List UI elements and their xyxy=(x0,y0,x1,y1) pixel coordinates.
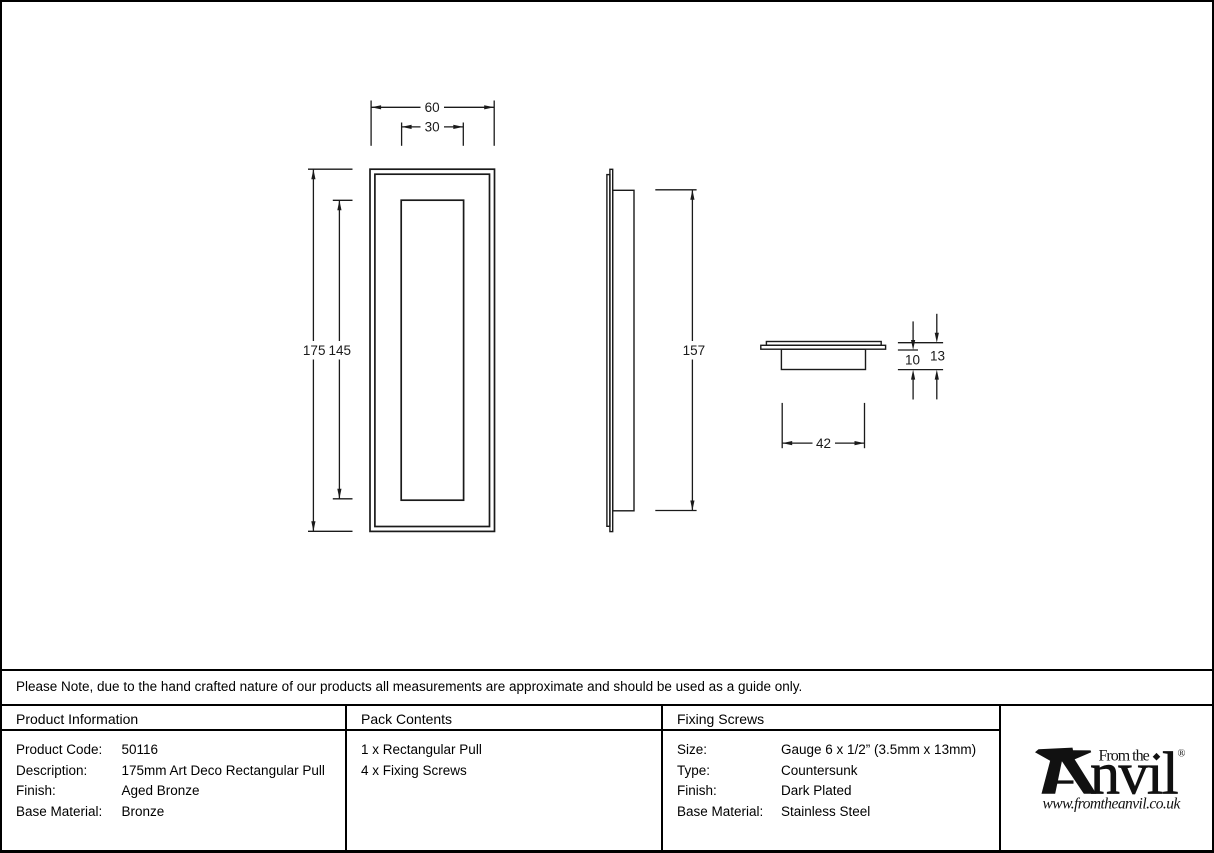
svg-text:www.fromtheanvil.co.uk: www.fromtheanvil.co.uk xyxy=(1043,796,1182,813)
svg-text:From the: From the xyxy=(1099,748,1150,765)
svg-text:10: 10 xyxy=(905,353,920,368)
svg-text:42: 42 xyxy=(816,436,831,451)
svg-text:®: ® xyxy=(1178,749,1186,760)
svg-text:157: 157 xyxy=(683,343,706,358)
svg-text:145: 145 xyxy=(329,343,352,358)
svg-text:175: 175 xyxy=(303,343,326,358)
svg-text:13: 13 xyxy=(930,349,945,364)
svg-text:60: 60 xyxy=(425,100,440,115)
svg-text:30: 30 xyxy=(425,120,440,135)
